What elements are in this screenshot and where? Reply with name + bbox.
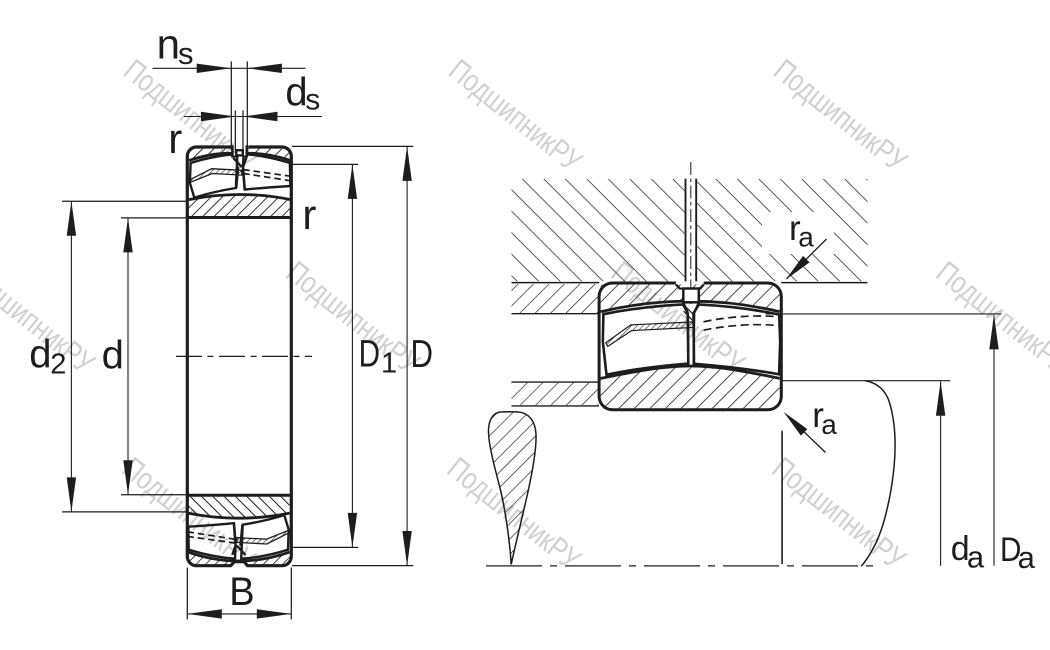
svg-text:D: D <box>411 333 434 376</box>
svg-text:B: B <box>229 570 254 614</box>
svg-text:r: r <box>168 115 182 162</box>
svg-text:d: d <box>102 333 124 377</box>
svg-text:d: d <box>29 333 51 377</box>
svg-text:a: a <box>967 540 985 575</box>
svg-text:2: 2 <box>50 348 66 380</box>
svg-text:a: a <box>1018 540 1036 575</box>
svg-text:1: 1 <box>381 348 397 380</box>
svg-text:d: d <box>285 71 307 115</box>
svg-text:r: r <box>302 191 316 238</box>
svg-text:s: s <box>178 36 194 71</box>
svg-text:s: s <box>305 83 320 116</box>
svg-text:D: D <box>359 333 380 375</box>
svg-text:n: n <box>157 21 180 68</box>
svg-text:a: a <box>798 221 814 252</box>
svg-text:a: a <box>821 409 837 440</box>
